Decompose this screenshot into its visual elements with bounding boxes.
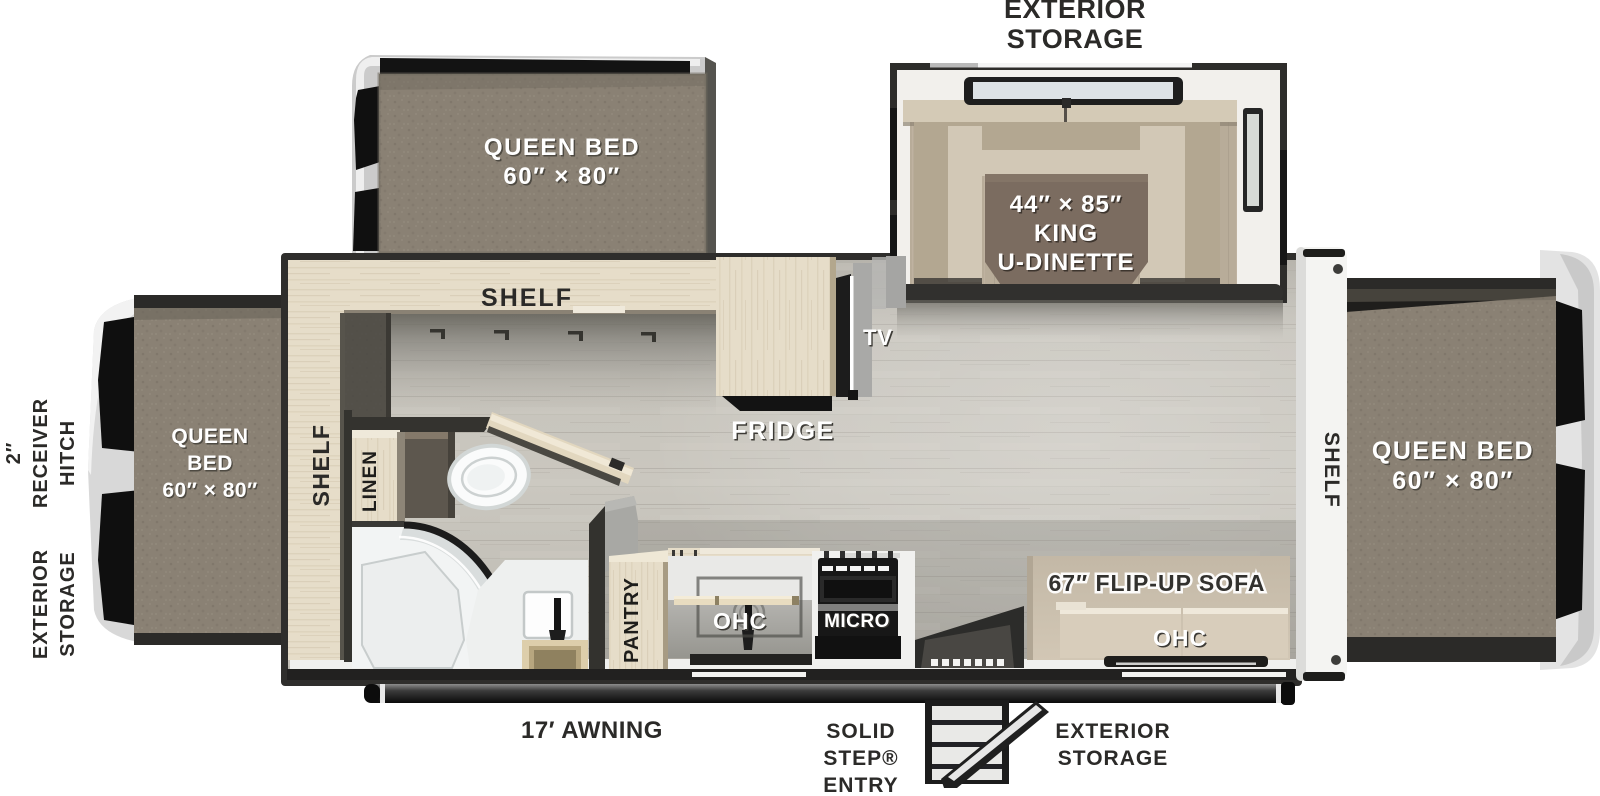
svg-text:PANTRY: PANTRY — [621, 577, 643, 663]
svg-text:SHELF: SHELF — [308, 424, 334, 507]
svg-text:LINEN: LINEN — [360, 450, 381, 512]
svg-text:17′ AWNING: 17′ AWNING — [521, 717, 663, 744]
svg-text:RECEIVER: RECEIVER — [30, 398, 52, 508]
svg-text:STORAGE: STORAGE — [1058, 747, 1168, 770]
svg-text:ENTRY: ENTRY — [823, 774, 898, 796]
svg-text:44″ × 85″: 44″ × 85″ — [1010, 191, 1123, 218]
svg-text:60″ × 80″: 60″ × 80″ — [1392, 467, 1514, 495]
svg-text:TV: TV — [863, 325, 893, 350]
svg-text:STORAGE: STORAGE — [1007, 24, 1144, 54]
svg-text:SHELF: SHELF — [1320, 432, 1343, 508]
svg-text:STORAGE: STORAGE — [57, 551, 79, 657]
svg-text:2″: 2″ — [3, 442, 25, 465]
svg-text:HITCH: HITCH — [57, 420, 79, 486]
svg-text:QUEEN BED: QUEEN BED — [484, 134, 640, 161]
svg-text:QUEEN BED: QUEEN BED — [1372, 437, 1534, 465]
svg-text:OHC: OHC — [1153, 625, 1207, 651]
svg-text:60″ × 80″: 60″ × 80″ — [162, 479, 257, 502]
svg-text:60″ × 80″: 60″ × 80″ — [503, 163, 620, 190]
svg-text:SHELF: SHELF — [481, 284, 573, 312]
svg-text:FRIDGE: FRIDGE — [731, 417, 834, 445]
svg-text:EXTERIOR: EXTERIOR — [1055, 720, 1170, 743]
svg-text:OHC: OHC — [713, 608, 767, 634]
svg-text:67″ FLIP-UP SOFA: 67″ FLIP-UP SOFA — [1048, 570, 1265, 596]
svg-text:MICRO: MICRO — [824, 611, 890, 632]
svg-text:U-DINETTE: U-DINETTE — [998, 249, 1135, 276]
svg-text:SOLID: SOLID — [826, 720, 895, 743]
svg-text:EXTERIOR: EXTERIOR — [1004, 0, 1146, 24]
svg-text:EXTERIOR: EXTERIOR — [30, 549, 52, 659]
svg-text:BED: BED — [187, 452, 233, 475]
svg-text:QUEEN: QUEEN — [171, 425, 248, 448]
svg-text:KING: KING — [1034, 220, 1098, 247]
svg-text:STEP®: STEP® — [823, 747, 898, 770]
